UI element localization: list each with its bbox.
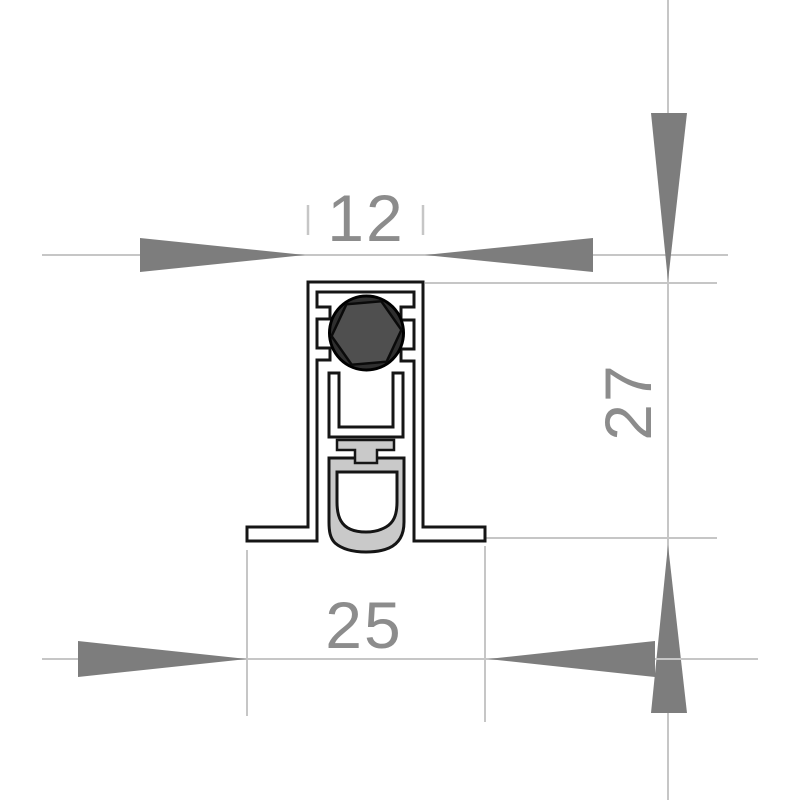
dim-arrow-27-bottom <box>651 545 687 713</box>
inner-slide-channel <box>329 373 403 437</box>
dim-arrow-12-left <box>140 238 305 272</box>
dimension-top-width: 12 <box>42 181 728 272</box>
dimension-bottom-width: 25 <box>42 546 758 722</box>
dim-label-12: 12 <box>327 181 404 255</box>
dim-arrow-25-right <box>488 641 655 677</box>
dim-label-27: 27 <box>591 363 665 440</box>
dim-arrow-12-right <box>425 238 593 272</box>
dimension-overall-height: 27 <box>425 0 717 800</box>
gasket-cavity <box>337 472 397 532</box>
drawing-canvas: 12 27 25 <box>0 0 800 800</box>
door-seal-cross-section: 12 27 25 <box>0 0 800 800</box>
dim-arrow-25-left <box>78 641 247 677</box>
dim-label-25: 25 <box>325 588 402 662</box>
profile-section <box>247 282 485 552</box>
